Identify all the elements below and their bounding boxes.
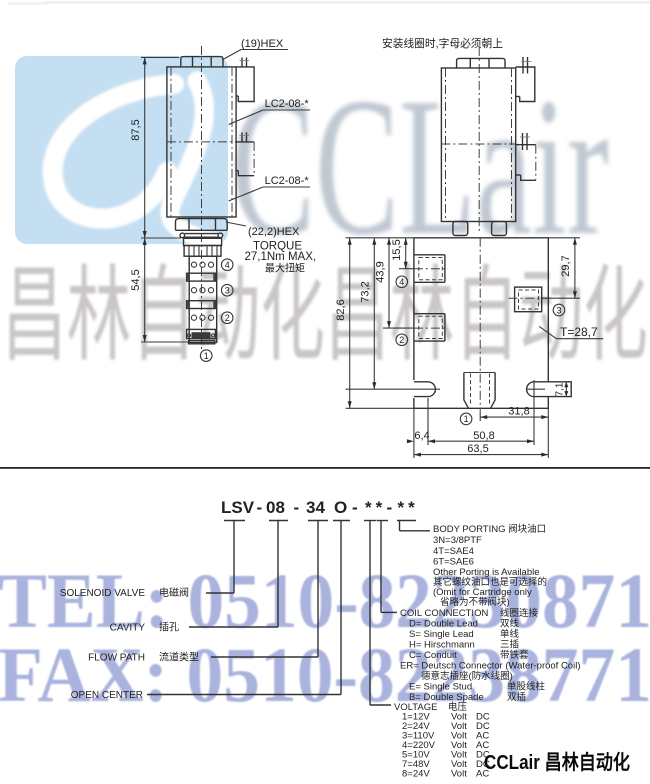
svg-text:FLOW PATH: FLOW PATH: [88, 653, 145, 664]
svg-text:4T=SAE4: 4T=SAE4: [433, 546, 474, 557]
svg-text:省略为不带阀块): 省略为不带阀块): [440, 596, 510, 608]
svg-text:7,1: 7,1: [555, 382, 566, 396]
svg-text:ER= Deutsch Connector (Water-p: ER= Deutsch Connector (Water-proof Coil): [400, 661, 580, 672]
svg-text:线圈连接: 线圈连接: [500, 607, 539, 619]
svg-text:1: 1: [204, 351, 209, 361]
svg-text:德意志插座(防水线圈): 德意志插座(防水线圈): [421, 670, 513, 682]
svg-text:3: 3: [225, 286, 230, 296]
svg-text:87,5: 87,5: [130, 119, 142, 140]
svg-text:E= Single Stud: E= Single Stud: [409, 682, 472, 693]
svg-text:27,1Nm MAX,: 27,1Nm MAX,: [245, 251, 317, 263]
svg-text:4: 4: [399, 277, 404, 287]
svg-text:1: 1: [464, 414, 469, 424]
svg-text:43,9: 43,9: [374, 261, 386, 282]
svg-text:29,7: 29,7: [560, 255, 572, 276]
svg-text:CAVITY: CAVITY: [110, 623, 146, 634]
svg-text:73,2: 73,2: [360, 281, 372, 302]
svg-text:SOLENOID VALVE: SOLENOID VALVE: [60, 588, 146, 599]
svg-text:电磁阀: 电磁阀: [159, 586, 189, 599]
svg-text:BODY PORTING 阀块油口: BODY PORTING 阀块油口: [433, 523, 546, 535]
svg-text:安装线圈时,字母必须朝上: 安装线圈时,字母必须朝上: [382, 36, 503, 50]
svg-text:54,5: 54,5: [130, 269, 142, 290]
svg-text:三插: 三插: [500, 639, 520, 651]
svg-text:50,8: 50,8: [473, 430, 494, 442]
svg-text:63,5: 63,5: [467, 443, 488, 455]
svg-text:单股线柱: 单股线柱: [507, 681, 546, 693]
svg-text:昌林自动化昌林自动化: 昌林自动化昌林自动化: [2, 258, 648, 374]
svg-text:82,6: 82,6: [335, 299, 347, 320]
svg-text:COIL CONNECTION: COIL CONNECTION: [400, 608, 488, 619]
svg-text:LSV-08-34O-**-**: LSV-08-34O-**-**: [221, 498, 419, 517]
svg-text:Volt: Volt: [451, 769, 467, 780]
svg-text:T=28,7: T=28,7: [560, 325, 598, 339]
svg-text:8=24V: 8=24V: [402, 769, 430, 780]
svg-text:2: 2: [225, 313, 230, 323]
svg-text:15,5: 15,5: [391, 239, 403, 260]
svg-text:LC2-08-*: LC2-08-*: [265, 98, 310, 110]
svg-text:FAX: 0510-82238771: FAX: 0510-82238771: [0, 631, 650, 718]
svg-text:CCLair 昌林自动化: CCLair 昌林自动化: [484, 750, 630, 774]
svg-text:3: 3: [556, 305, 561, 315]
svg-text:双插: 双插: [507, 691, 527, 703]
svg-text:6,4: 6,4: [414, 430, 429, 442]
svg-text:插孔: 插孔: [159, 621, 179, 634]
svg-text:31,8: 31,8: [508, 406, 529, 418]
svg-text:流道类型: 流道类型: [159, 651, 199, 664]
svg-text:6T=SAE6: 6T=SAE6: [433, 557, 474, 568]
svg-text:单线: 单线: [500, 628, 520, 640]
svg-text:C= Conduit: C= Conduit: [409, 650, 457, 661]
svg-text:S= Single Lead: S= Single Lead: [409, 629, 474, 640]
svg-text:最大扭矩: 最大扭矩: [265, 262, 305, 275]
svg-text:LC2-08-*: LC2-08-*: [265, 175, 310, 187]
svg-text:3N=3/8PTF: 3N=3/8PTF: [433, 535, 482, 546]
svg-text:OPEN CENTER: OPEN CENTER: [71, 690, 143, 701]
svg-text:4: 4: [225, 260, 230, 270]
svg-text:双线: 双线: [500, 618, 520, 630]
svg-text:H= Hirschmann: H= Hirschmann: [409, 640, 475, 651]
svg-text:2: 2: [399, 335, 404, 345]
svg-text:带铁套: 带铁套: [500, 649, 529, 661]
svg-text:(22,2)HEX: (22,2)HEX: [248, 226, 300, 238]
svg-text:D= Double Lead: D= Double Lead: [409, 619, 478, 630]
svg-text:(19)HEX: (19)HEX: [241, 38, 284, 50]
